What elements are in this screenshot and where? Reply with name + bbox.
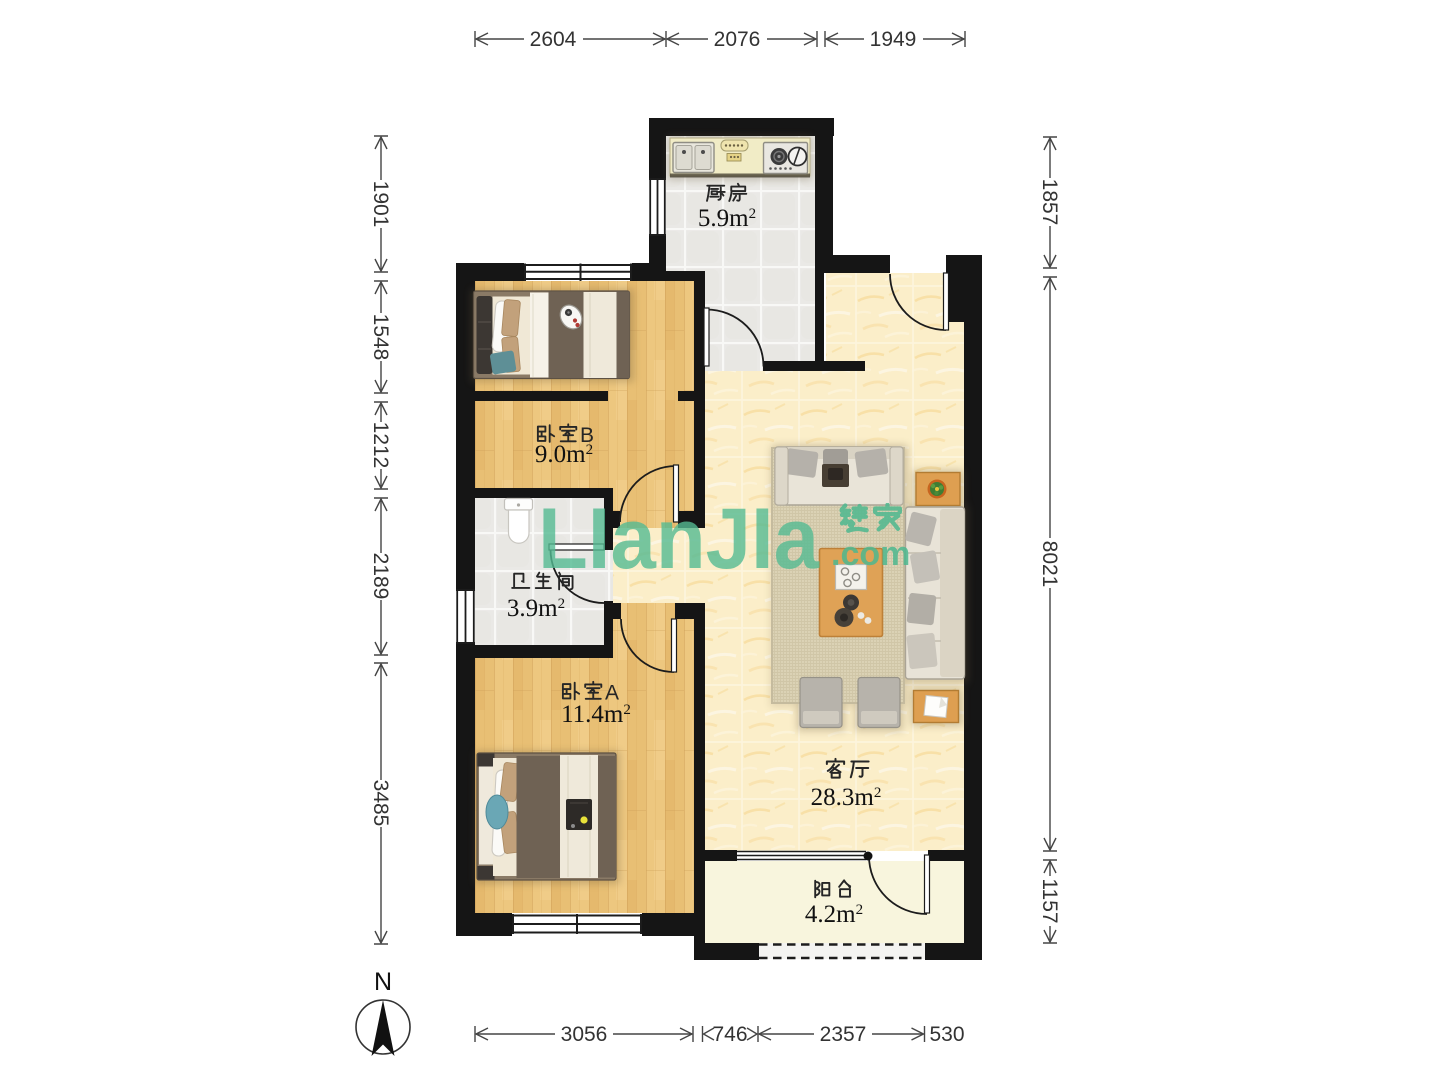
svg-text:2076: 2076 (714, 28, 761, 51)
svg-text:1212: 1212 (369, 422, 392, 469)
svg-text:3.9m2: 3.9m2 (507, 595, 565, 622)
svg-text:2357: 2357 (820, 1023, 867, 1046)
svg-text:N: N (374, 968, 392, 996)
svg-text:28.3m2: 28.3m2 (811, 784, 882, 811)
svg-text:.com: .com (831, 535, 910, 573)
svg-text:1857: 1857 (1038, 179, 1061, 226)
svg-text:LIanJIa: LIanJIa (538, 491, 820, 587)
svg-text:5.9m2: 5.9m2 (698, 205, 756, 232)
svg-text:3056: 3056 (561, 1023, 608, 1046)
svg-text:746: 746 (712, 1023, 747, 1046)
svg-text:1949: 1949 (870, 28, 917, 51)
svg-text:2189: 2189 (369, 553, 392, 600)
svg-text:8021: 8021 (1038, 541, 1061, 588)
svg-text:2604: 2604 (530, 28, 577, 51)
svg-text:530: 530 (929, 1023, 964, 1046)
svg-text:11.4m2: 11.4m2 (561, 701, 631, 728)
svg-text:1548: 1548 (369, 314, 392, 361)
svg-text:3485: 3485 (369, 780, 392, 827)
svg-text:9.0m2: 9.0m2 (535, 441, 593, 468)
svg-text:1901: 1901 (369, 181, 392, 228)
svg-text:1157: 1157 (1038, 878, 1061, 923)
svg-text:4.2m2: 4.2m2 (805, 901, 863, 928)
